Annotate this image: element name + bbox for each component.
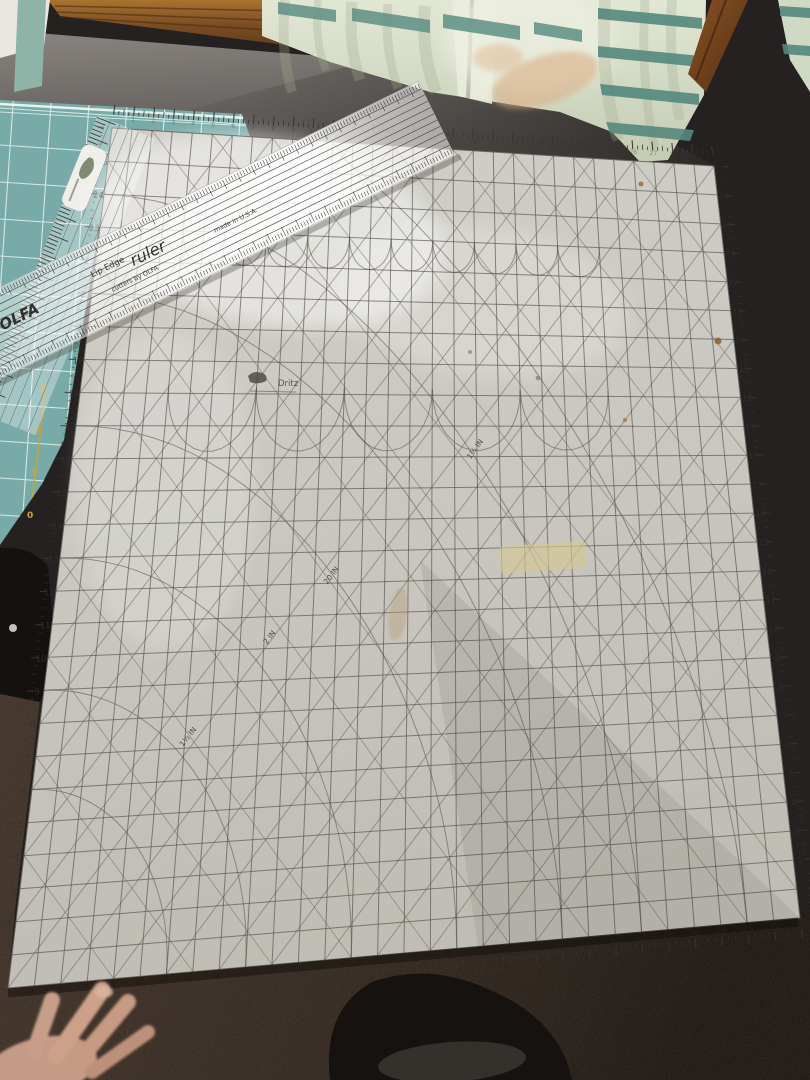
scale-number: 13 [759, 538, 769, 547]
scale-number: 8 [30, 721, 36, 731]
scale-number: 3 [171, 119, 175, 126]
scale-number: 8 [271, 125, 275, 132]
scale-number: 27 [649, 150, 657, 157]
scale-number: 8 [778, 683, 784, 692]
scale-number: 7 [781, 711, 787, 720]
scale-number: 21 [529, 142, 537, 149]
scale-number: 17 [745, 423, 755, 432]
white-dot [9, 624, 17, 632]
scale-number: 9 [775, 654, 780, 663]
edge-tick [0, 923, 6, 924]
scale-number: 13 [48, 555, 59, 565]
scale-number: 22 [549, 143, 557, 150]
scale-number: 25 [718, 191, 729, 201]
scale-number: 26 [629, 149, 637, 156]
grid-line-h [76, 426, 744, 427]
scale-number: 12 [762, 567, 772, 576]
edge-tick [233, 113, 234, 123]
edge-tick [800, 830, 808, 831]
teal-scale-number: 1 [31, 469, 37, 479]
scale-number: 25 [609, 147, 617, 154]
edge-tick [138, 989, 139, 999]
scale-number: 14 [755, 509, 765, 518]
edge-tick [669, 942, 670, 951]
scale-number: 24 [589, 146, 597, 153]
scale-number: 2 [798, 856, 804, 865]
edge-tick [6, 856, 14, 857]
edge-tick [695, 939, 696, 948]
scale-number: 4 [14, 853, 20, 863]
scale-number: 6 [231, 123, 235, 130]
scale-number: 22 [728, 278, 738, 287]
scale-number: 4 [191, 120, 195, 127]
scale-number: 20 [735, 336, 745, 345]
teal-curtain-strip [14, 0, 46, 92]
rust-spot-1 [715, 338, 722, 345]
scale-number: 16 [60, 456, 71, 466]
scale-number: 23 [569, 145, 577, 152]
scale-number: 7 [26, 754, 32, 764]
scale-number: 20 [509, 141, 517, 148]
teal-scale-number: 0 [27, 511, 33, 521]
scale-number: 3 [795, 827, 801, 836]
dritz-logo-text: Dritz [278, 379, 299, 389]
scale-number: 19 [72, 356, 83, 366]
scale-number: 5 [788, 769, 794, 778]
scale-number: 10 [36, 654, 47, 664]
edge-tick [2, 890, 10, 891]
cutting-mat-photo: 3210 12345678910111213141516171819202122… [0, 0, 810, 1080]
fingertip-highlight [95, 986, 113, 998]
scale-number: 5 [211, 121, 215, 128]
scale-number: 18 [68, 389, 79, 399]
rust-spot-5 [536, 376, 541, 381]
edge-tick [722, 937, 723, 946]
scale-number: 9 [291, 127, 295, 134]
scale-number: 7 [251, 124, 255, 131]
scale-number: 2 [151, 118, 155, 125]
scale-number: 15 [56, 489, 67, 499]
scale-number: 4 [791, 798, 797, 807]
scale-number: 16 [749, 452, 759, 461]
edge-tick [804, 859, 810, 860]
scale-number: 3 [10, 886, 16, 896]
scale-number: 18 [469, 138, 477, 145]
scale-number: 18 [742, 394, 752, 403]
scale-number: 1 [131, 116, 135, 123]
edge-tick [293, 117, 294, 127]
edge-tick [592, 138, 593, 147]
scale-number: 5 [18, 820, 24, 830]
scale-number: 10 [769, 625, 780, 634]
edge-tick [244, 980, 245, 990]
rust-spot-3 [623, 418, 627, 422]
scale-number: 6 [22, 787, 28, 797]
scale-number: 21 [732, 307, 742, 316]
edge-tick [0, 956, 2, 957]
rust-spot-4 [468, 350, 472, 354]
edge-tick [218, 982, 219, 992]
scale-number: 17 [64, 423, 75, 433]
edge-tick [612, 139, 613, 148]
scale-number: 6 [785, 740, 791, 749]
edge-tick [797, 801, 805, 802]
scale-number: 12 [44, 588, 55, 598]
scale-number: 2 [6, 919, 12, 929]
rust-spot-2 [639, 182, 644, 187]
scale-number: 23 [725, 249, 736, 258]
edge-tick [191, 985, 192, 995]
edge-tick [748, 934, 749, 943]
scale-number: 19 [739, 365, 749, 374]
edge-tick [642, 944, 643, 953]
sun-reflection-2 [473, 44, 523, 72]
scale-number: 28 [669, 151, 677, 158]
scale-number: 11 [40, 621, 51, 631]
scale-number: 29 [689, 153, 697, 160]
edge-tick [253, 114, 254, 124]
scale-number: 17 [449, 137, 457, 144]
scale-number: 24 [722, 220, 733, 229]
edge-tick [632, 140, 633, 149]
scale-number: 19 [489, 140, 497, 147]
edge-tick [165, 987, 166, 997]
scale-number: 15 [752, 480, 762, 489]
edge-tick [273, 116, 274, 126]
scale-number: 14 [52, 522, 63, 532]
photo-stage: 3210 12345678910111213141516171819202122… [0, 0, 810, 1080]
scale-number: 9 [34, 687, 40, 697]
scale-number: 11 [765, 596, 775, 605]
